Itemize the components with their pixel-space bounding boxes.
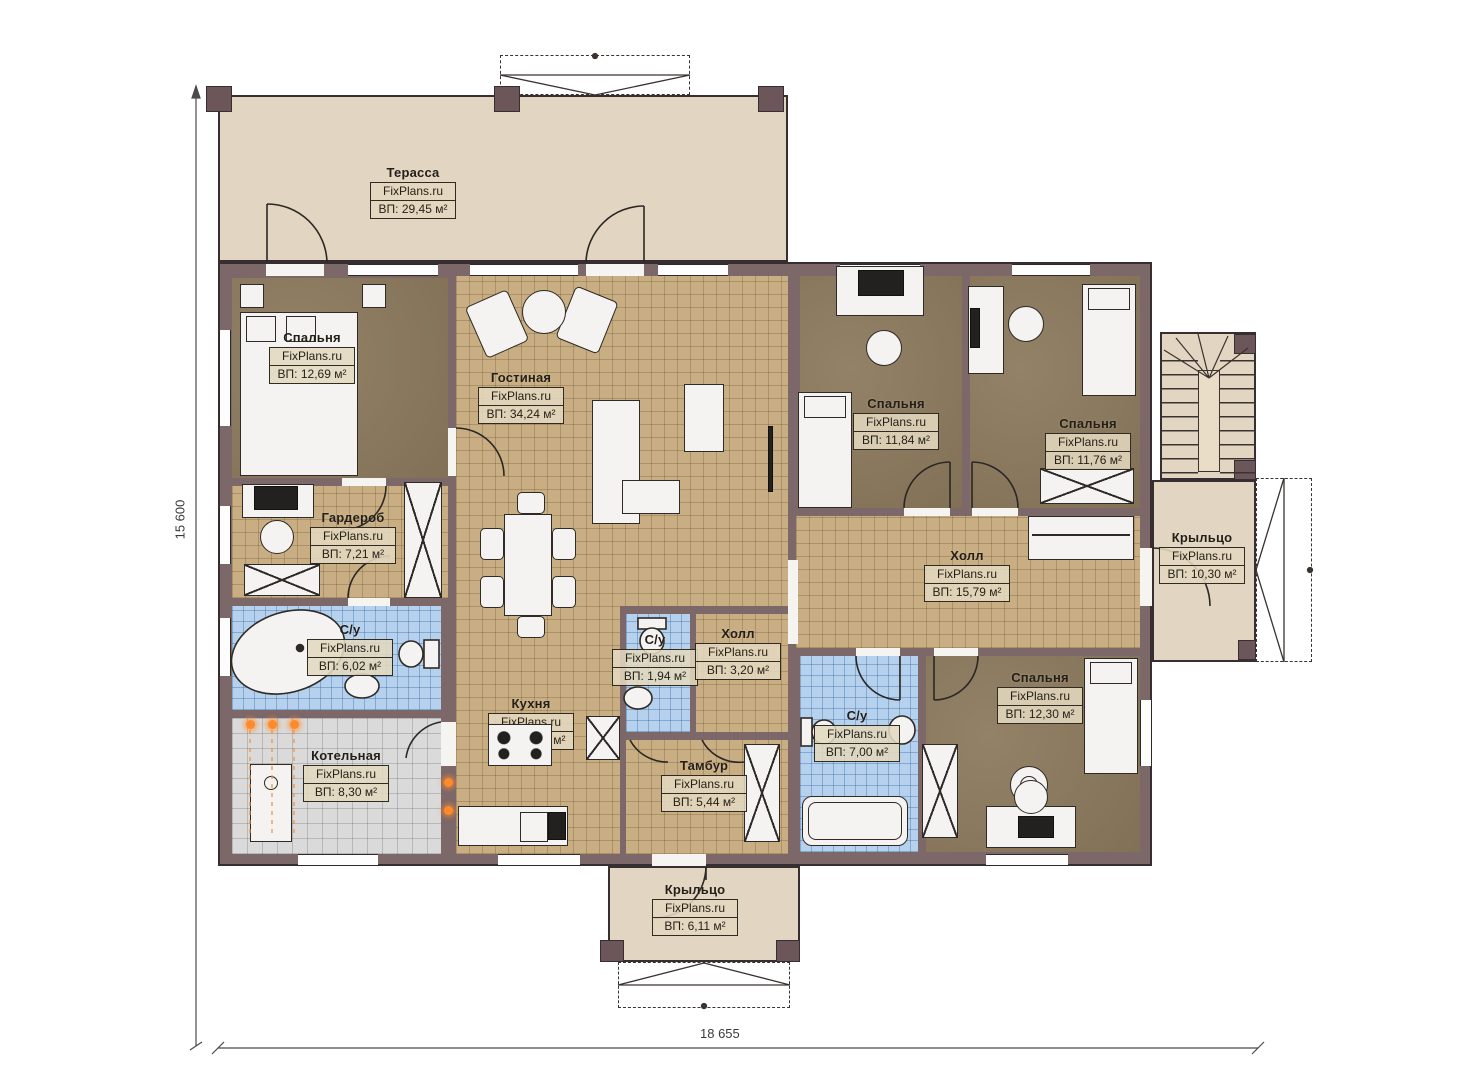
opening [788,560,798,644]
watermark: FixPlans.ru [696,644,780,662]
window [348,264,438,276]
room-name: С/у [814,708,900,723]
room-name: Терасса [370,165,456,180]
room-label-bathroom-2: С/у FixPlans.ruВП: 1,94 м² [612,632,698,686]
room-area: ВП: 8,30 м² [304,784,388,801]
room-name: Гостиная [478,370,564,385]
watermark: FixPlans.ru [662,776,746,794]
canopy-right [1256,478,1312,662]
room-name: Спальня [269,330,355,345]
dimension-height: 15 600 [173,490,188,550]
window [658,264,728,276]
room-label-bedroom-2: Спальня FixPlans.ruВП: 11,84 м² [853,396,939,450]
room-area: ВП: 15,79 м² [925,584,1009,601]
canopy-bottom [618,962,790,1008]
room-name: Кухня [488,696,574,711]
pillar [776,940,800,962]
closet [922,744,958,838]
pillow [1090,662,1132,684]
wall [620,732,790,740]
closet [744,744,780,842]
office-chair [260,520,294,554]
room-name: Спальня [997,670,1083,685]
room-name: С/у [307,622,393,637]
room-label-porch-right: Крыльцо FixPlans.ruВП: 10,30 м² [1159,530,1245,584]
room-area: ВП: 29,45 м² [371,201,455,218]
door-opening [652,854,706,866]
shelving-unit [622,480,680,514]
dimension-width: 18 655 [700,1026,740,1041]
pillar [494,86,520,112]
watermark: FixPlans.ru [1046,434,1130,452]
boiler-dial [264,776,278,790]
watermark: FixPlans.ru [815,726,899,744]
sofa-back-line [1032,534,1130,536]
room-name: Холл [924,548,1010,563]
room-name: Тамбур [661,758,747,773]
wall [620,606,790,614]
wardrobe-closet [1040,468,1134,504]
pillar [600,940,624,962]
watermark: FixPlans.ru [308,640,392,658]
room-area: ВП: 3,20 м² [696,662,780,679]
room-name: Крыльцо [652,882,738,897]
room-label-terrace: Терасса FixPlans.ruВП: 29,45 м² [370,165,456,219]
coffee-table [522,290,566,334]
heating-marker [268,720,277,729]
room-area: ВП: 7,21 м² [311,546,395,563]
pillow [1088,288,1130,310]
pillar [758,86,784,112]
pillar [1234,334,1256,354]
door-opening [342,478,386,486]
tv [768,426,773,492]
floor-plan: 15 600 18 655 Терасса FixPlans.ruВП: 29,… [0,0,1473,1080]
room-area: ВП: 12,69 м² [270,366,354,383]
room-name: Котельная [303,748,389,763]
door-opening [1140,548,1152,606]
stair-stringer [1198,370,1220,472]
heating-marker [444,778,453,787]
door-opening [934,648,978,656]
monitor [970,308,980,348]
room-label-bathroom-3: С/у FixPlans.ruВП: 7,00 м² [814,708,900,762]
dining-chair [480,528,504,560]
room-area: ВП: 11,76 м² [1046,452,1130,469]
watermark: FixPlans.ru [479,388,563,406]
oven [548,812,566,840]
heating-marker [246,720,255,729]
watermark: FixPlans.ru [854,414,938,432]
watermark: FixPlans.ru [998,688,1082,706]
dining-chair [517,616,545,638]
room-name: Гардероб [310,510,396,525]
pillar [206,86,232,112]
room-label-hall: Холл FixPlans.ruВП: 15,79 м² [924,548,1010,602]
window [1140,700,1152,766]
kitchen-sink [520,812,548,842]
room-area: ВП: 6,02 м² [308,658,392,675]
heating-marker [290,720,299,729]
laptop [1018,816,1054,838]
room-name: Спальня [1045,416,1131,431]
door-opening [856,648,900,656]
stove [488,724,552,766]
stair-treads [1220,360,1256,478]
closet [404,482,442,598]
room-area: ВП: 12,30 м² [998,706,1082,723]
room-label-bedroom-1: Спальня FixPlans.ruВП: 12,69 м² [269,330,355,384]
room-label-vestibule: Тамбур FixPlans.ruВП: 5,44 м² [661,758,747,812]
room-label-porch-bottom: Крыльцо FixPlans.ruВП: 6,11 м² [652,882,738,936]
watermark: FixPlans.ru [653,900,737,918]
window [219,506,231,564]
bathtub-inner [808,802,902,840]
window [1012,264,1090,276]
office-chair [1014,780,1048,814]
window [219,330,231,426]
dining-chair [480,576,504,608]
room-label-bathroom-1: С/у FixPlans.ruВП: 6,02 м² [307,622,393,676]
room-label-hall-small: Холл FixPlans.ruВП: 3,20 м² [695,626,781,680]
room-label-boiler-room: Котельная FixPlans.ruВП: 8,30 м² [303,748,389,802]
room-area: ВП: 11,84 м² [854,432,938,449]
door-opening [972,508,1018,516]
room-area: ВП: 34,24 м² [479,406,563,423]
watermark: FixPlans.ru [371,183,455,201]
room-area: ВП: 6,11 м² [653,918,737,935]
closet [244,564,320,596]
room-label-wardrobe: Гардероб FixPlans.ruВП: 7,21 м² [310,510,396,564]
room-area: ВП: 5,44 м² [662,794,746,811]
window [498,854,580,866]
dining-chair [552,576,576,608]
window [219,618,231,676]
sofa [1028,516,1134,560]
window [986,854,1068,866]
room-name: Спальня [853,396,939,411]
watermark: FixPlans.ru [311,528,395,546]
printer [858,270,904,296]
door-opening [348,598,390,606]
room-name: Крыльцо [1159,530,1245,545]
room-area: ВП: 7,00 м² [815,744,899,761]
door-opening [586,264,644,276]
room-name: С/у [612,632,698,647]
door-opening [266,264,324,276]
office-chair [866,330,902,366]
canopy-top [500,55,690,95]
window [470,264,578,276]
fridge [586,716,620,760]
door-opening [441,722,456,766]
watermark: FixPlans.ru [613,650,697,668]
watermark: FixPlans.ru [1160,548,1244,566]
room-label-bedroom-3: Спальня FixPlans.ruВП: 11,76 м² [1045,416,1131,470]
dining-table [504,514,552,616]
watermark: FixPlans.ru [925,566,1009,584]
office-chair [1008,306,1044,342]
nightstand [362,284,386,308]
watermark: FixPlans.ru [270,348,354,366]
room-label-living-room: Гостиная FixPlans.ruВП: 34,24 м² [478,370,564,424]
pillow [804,396,846,418]
stair-treads [1162,360,1198,478]
terrace [218,95,788,262]
door-opening [448,428,456,476]
dining-chair [552,528,576,560]
pillar [1238,640,1256,660]
window [298,854,378,866]
watermark: FixPlans.ru [304,766,388,784]
cabinet [684,384,724,452]
room-label-bedroom-4: Спальня FixPlans.ruВП: 12,30 м² [997,670,1083,724]
room-area: ВП: 1,94 м² [613,668,697,685]
dining-chair [517,492,545,514]
nightstand [240,284,264,308]
room-area: ВП: 10,30 м² [1160,566,1244,583]
printer [254,486,298,510]
door-opening [904,508,950,516]
heating-marker [444,806,453,815]
room-name: Холл [695,626,781,641]
